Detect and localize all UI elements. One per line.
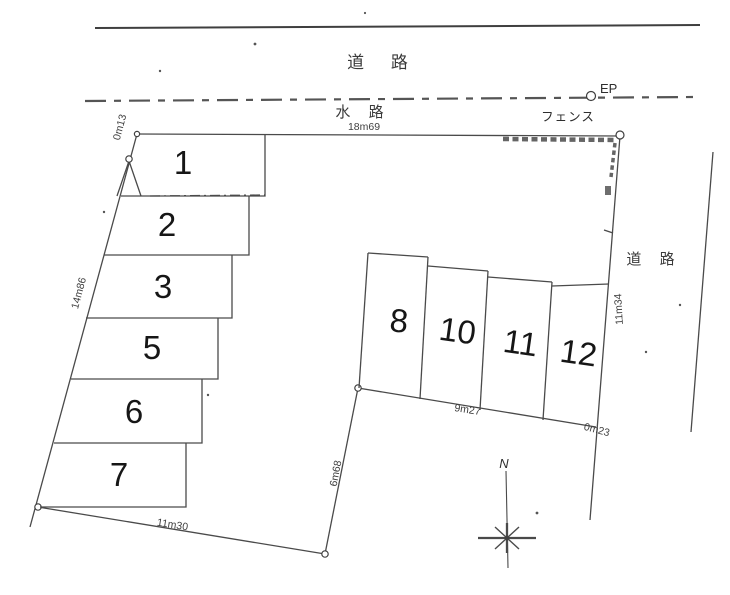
boundary-top-line xyxy=(137,134,620,136)
waterway-dashed-line xyxy=(85,97,697,101)
plot-number: 5 xyxy=(143,329,161,366)
north-compass: N xyxy=(478,456,536,568)
road-top-line xyxy=(95,25,700,28)
plot-number: 8 xyxy=(388,301,410,339)
bottom-edge-measurement: 11m30 xyxy=(156,517,189,534)
speck xyxy=(207,394,209,396)
plot-outline xyxy=(420,257,428,399)
plot-outline xyxy=(359,253,368,388)
speck xyxy=(364,12,366,14)
north-label: N xyxy=(499,456,509,471)
inner-vertical-measurement: 6m68 xyxy=(328,459,345,487)
compass-center-dot xyxy=(505,536,509,540)
plot-outline xyxy=(543,282,552,420)
site-plan-diagram: 道 路 EP 水 路 フェンス 18m69 0m13 14m86 11m34 1… xyxy=(0,0,730,595)
plot-outline xyxy=(150,134,265,196)
right-side-measurement: 11m34 xyxy=(612,293,626,325)
boundary-tick-mark xyxy=(604,230,613,233)
plot-outline xyxy=(552,284,609,286)
road-right-line xyxy=(691,152,713,432)
speck xyxy=(254,43,257,46)
plot-number: 2 xyxy=(158,206,176,243)
speck xyxy=(536,512,539,515)
plot-number: 7 xyxy=(110,456,128,493)
left-side-measurement: 14m86 xyxy=(69,276,89,310)
left-top-measurement: 0m13 xyxy=(111,113,129,142)
speck xyxy=(159,70,161,72)
ep-label: EP xyxy=(600,81,617,96)
plot-number: 1 xyxy=(174,144,192,181)
fence-label: フェンス xyxy=(541,110,595,124)
plot-outline xyxy=(368,253,428,257)
survey-marker-node xyxy=(126,156,132,162)
plot-number: 11 xyxy=(501,322,540,363)
fence-post-mark xyxy=(605,186,611,195)
compass-needle-line xyxy=(506,471,508,568)
fence-marks-top xyxy=(503,139,617,140)
survey-triangle-marker xyxy=(117,161,141,196)
corner-node-innertop xyxy=(355,385,361,391)
corner-node-topright xyxy=(616,131,624,139)
scan-noise xyxy=(103,12,681,515)
speck xyxy=(645,351,647,353)
road-right-label: 道 路 xyxy=(626,251,681,268)
plot-number: 6 xyxy=(125,393,143,430)
corner-node-bottommid xyxy=(322,551,328,557)
plot-outline xyxy=(480,271,488,410)
plot-outline xyxy=(488,277,552,282)
inner-bottom-measurement: 9m27 xyxy=(454,402,482,418)
plot-outline xyxy=(104,196,249,255)
corner-node-topleft xyxy=(134,131,139,136)
plot-number: 12 xyxy=(558,332,600,374)
left-plot-group: 1 2 3 5 6 7 xyxy=(40,134,265,507)
speck xyxy=(103,211,105,213)
speck xyxy=(679,304,681,306)
fence-marks-right xyxy=(611,143,615,177)
road-top-label: 道 路 xyxy=(347,53,419,72)
plot-outline xyxy=(428,266,488,271)
plot-number: 3 xyxy=(154,268,172,305)
waterway-label: 水 路 xyxy=(335,104,390,121)
ep-marker-icon xyxy=(587,92,596,101)
top-edge-measurement: 18m69 xyxy=(348,121,380,133)
plot-number: 10 xyxy=(437,310,479,352)
